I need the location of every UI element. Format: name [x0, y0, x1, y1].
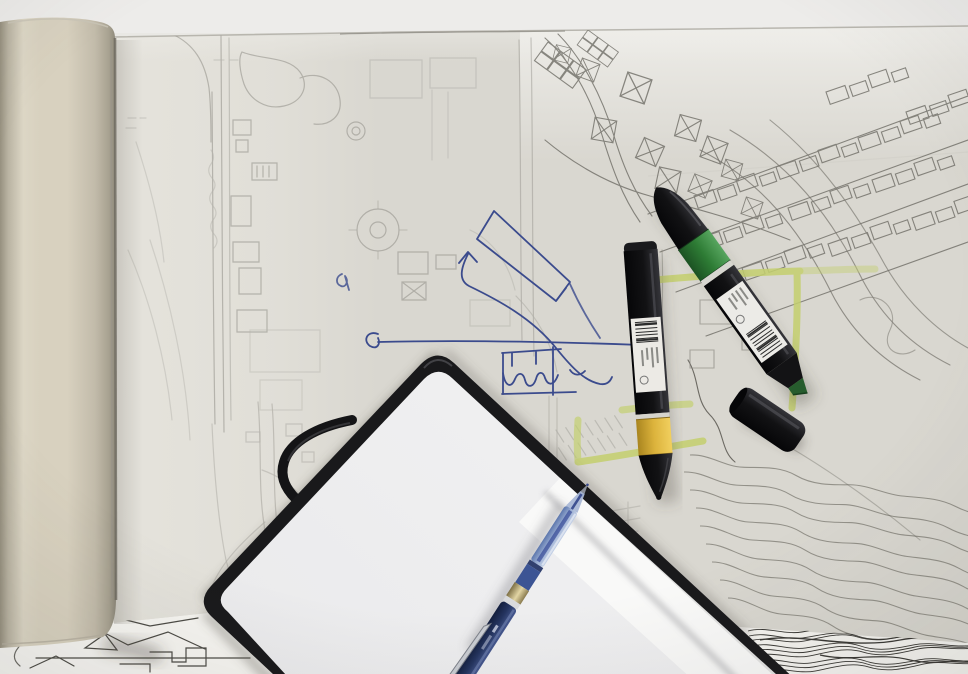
photo-canvas [0, 0, 968, 674]
photo-architect-desk [0, 0, 968, 674]
vignette [0, 0, 968, 674]
